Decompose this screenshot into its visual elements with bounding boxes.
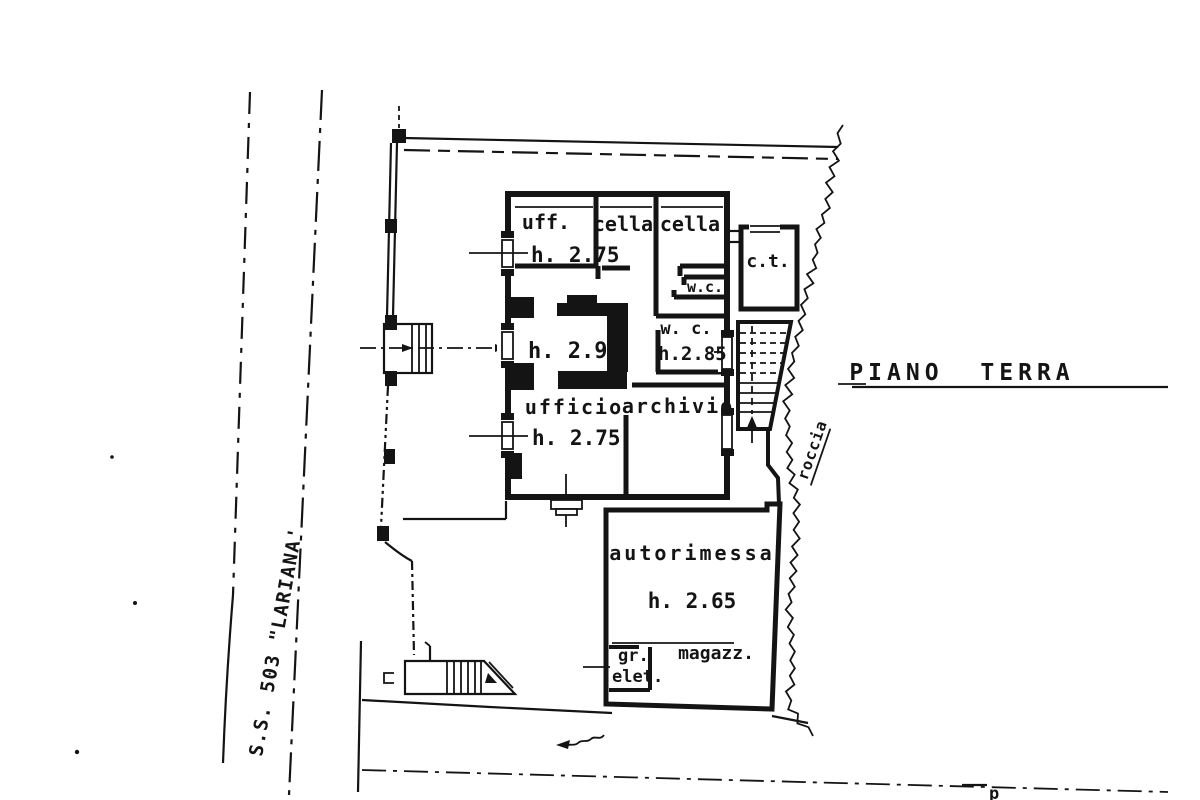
external-stair-east: [738, 322, 791, 504]
room-label-wc-top: w.c.: [687, 278, 723, 296]
scan-ink-specks: [75, 455, 137, 754]
rock-label-group: roccia: [793, 418, 832, 486]
corner-mark-text: p: [989, 784, 999, 800]
road-label: S.S. 503 "LARIANA': [245, 525, 307, 758]
room-label-ct: c.t.: [746, 251, 789, 272]
room-label-autorimessa: autorimessa: [609, 541, 774, 565]
top-boundary-lines: [404, 138, 838, 159]
yard-lines: [384, 501, 506, 683]
floor-plan-drawing: S.S. 503 "LARIANA': [0, 0, 1200, 800]
room-label-wc-mid: w. c.: [660, 319, 711, 339]
height-label-central: h. 2.95: [528, 339, 621, 364]
entrance-stair-west: [360, 324, 505, 373]
height-label-wc-mid: h.2.85: [658, 343, 727, 365]
room-label-uff: uff.: [522, 210, 570, 234]
south-porch-steps: [551, 474, 582, 527]
room-label-elet: elet.: [612, 667, 663, 687]
yard-stair-south: [405, 661, 515, 694]
room-label-gr: gr.: [618, 646, 649, 666]
scanned-floor-plan-page: S.S. 503 "LARIANA': [0, 0, 1200, 800]
drawing-title-text: PIANO TERRA: [849, 360, 1074, 386]
room-label-ufficio: ufficio: [525, 395, 623, 419]
rock-label: roccia: [794, 418, 831, 482]
height-label-ufficio: h. 2.75: [532, 426, 621, 450]
room-label-archivio: archivio: [622, 394, 734, 418]
height-label-autorimessa: h. 2.65: [648, 589, 737, 613]
room-label-magazz: magazz.: [678, 643, 754, 664]
room-label-cella-left: cella: [593, 212, 653, 236]
lower-boundary-lines: [358, 641, 1168, 792]
room-label-cella-right: cella: [660, 212, 720, 236]
height-label-uff: h. 2.75: [531, 243, 620, 267]
drawing-title: PIANO TERRA: [838, 360, 1168, 387]
